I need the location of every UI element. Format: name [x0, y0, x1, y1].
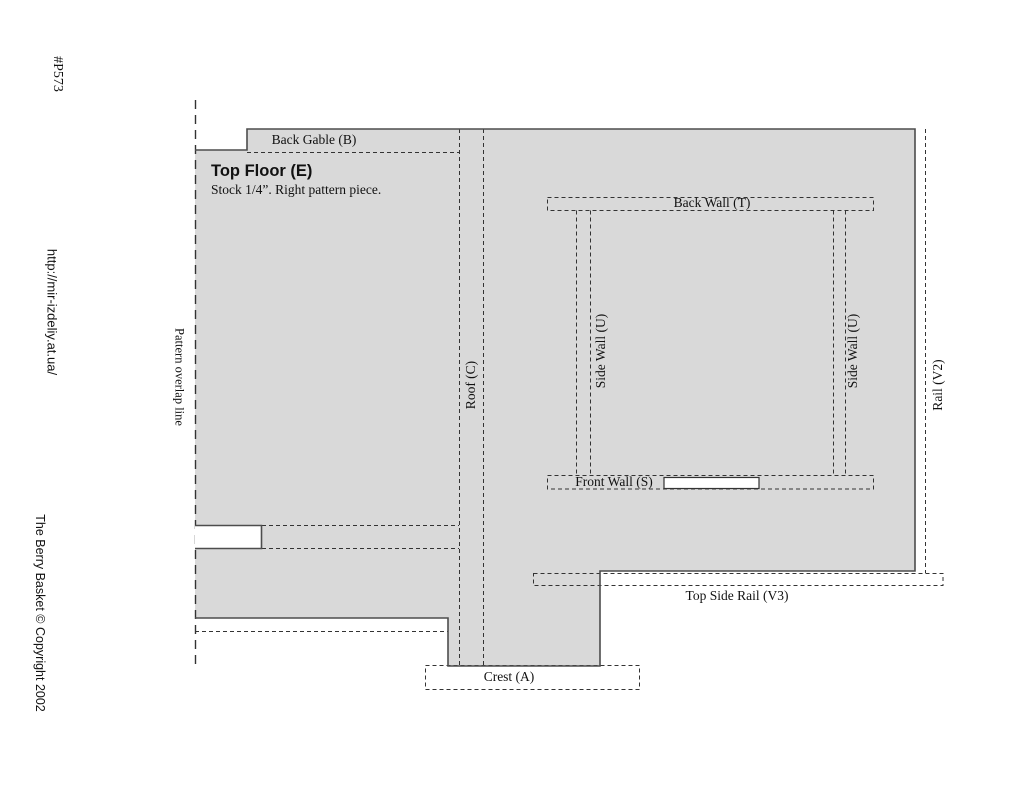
- crest-label: Crest (A): [484, 669, 535, 685]
- front-wall-label: Front Wall (S): [575, 474, 652, 490]
- top-floor-piece-fill: [195, 129, 915, 666]
- copyright-label: The Berry Basket © Copyright 2002: [33, 514, 47, 712]
- notch-fill: [195, 525, 262, 549]
- piece-title: Top Floor (E): [211, 162, 312, 181]
- side-wall-left-label: Side Wall (U): [593, 314, 609, 388]
- top-side-rail-label: Top Side Rail (V3): [686, 588, 789, 604]
- part-number-label: #P573: [49, 56, 65, 92]
- site-url-label: http://mir-izdeliy.at.ua/: [45, 249, 60, 375]
- front-wall-window: [664, 478, 759, 489]
- back-gable-label: Back Gable (B): [272, 132, 357, 148]
- back-wall-label: Back Wall (T): [674, 195, 751, 211]
- pattern-overlap-label: Pattern overlap line: [172, 328, 187, 426]
- piece-subtitle: Stock 1/4”. Right pattern piece.: [211, 182, 381, 198]
- side-wall-right-label: Side Wall (U): [845, 314, 861, 388]
- rail-v2-label: Rail (V2): [930, 359, 946, 410]
- roof-label: Roof (C): [463, 361, 479, 409]
- pattern-page: #P573 http://mir-izdeliy.at.ua/ The Berr…: [0, 0, 1024, 791]
